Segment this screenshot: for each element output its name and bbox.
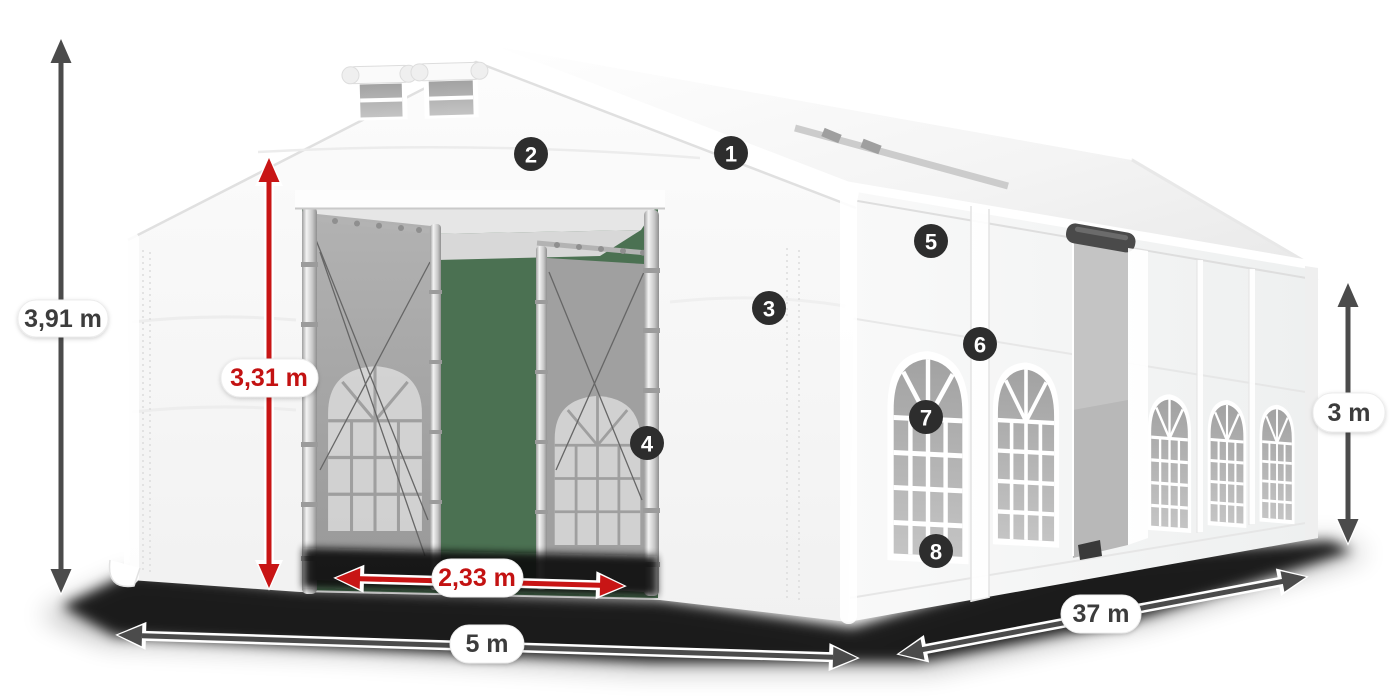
side-window xyxy=(993,361,1059,548)
tent xyxy=(110,38,1319,624)
entrance-opening xyxy=(301,205,660,598)
callout-badge-7: 7 xyxy=(909,400,943,434)
badge-number: 7 xyxy=(920,406,932,431)
callout-badge-3: 3 xyxy=(752,291,786,325)
length-value: 37 m xyxy=(1073,600,1130,628)
callout-badge-4: 4 xyxy=(630,426,664,460)
label-side-height: 3 m xyxy=(1313,393,1385,432)
callout-badge-2: 2 xyxy=(514,137,548,171)
total-height-value: 3,91 m xyxy=(24,305,102,333)
side-window xyxy=(1208,399,1247,528)
side-window xyxy=(888,349,969,564)
front-width-value: 5 m xyxy=(465,630,508,658)
door-window-print xyxy=(555,396,641,545)
side-height-value: 3 m xyxy=(1327,399,1370,427)
callout-badge-1: 1 xyxy=(714,136,748,170)
entrance-width-value: 2,33 m xyxy=(438,564,516,592)
corner-roll xyxy=(840,192,857,624)
wall-strap xyxy=(1128,248,1148,545)
label-entrance-height: 3,31 m xyxy=(221,359,318,397)
label-total-height: 3,91 m xyxy=(18,300,108,337)
wall-strap xyxy=(971,206,989,602)
side-window xyxy=(1260,403,1295,524)
badge-number: 8 xyxy=(930,540,942,565)
badge-number: 5 xyxy=(925,230,937,255)
entrance-height-value: 3,31 m xyxy=(230,364,308,392)
callout-badge-5: 5 xyxy=(914,224,948,258)
badge-number: 6 xyxy=(974,333,986,358)
badge-number: 1 xyxy=(725,142,737,167)
badge-number: 2 xyxy=(525,143,537,168)
badge-number: 3 xyxy=(763,297,775,322)
callout-badge-6: 6 xyxy=(963,327,997,361)
corner-roll xyxy=(124,232,139,584)
label-length: 37 m xyxy=(1061,595,1141,633)
entrance-header-beam xyxy=(295,190,665,209)
label-front-width: 5 m xyxy=(450,625,524,663)
label-entrance-width: 2,33 m xyxy=(432,559,523,597)
badge-number: 4 xyxy=(641,432,654,457)
tent-dimension-diagram: 3,91 m 3,31 m 2,33 m 5 m 37 m 3 m 1 2 3 … xyxy=(0,0,1400,700)
side-passage-opening xyxy=(1065,222,1137,560)
callout-badge-8: 8 xyxy=(919,534,953,568)
diagram-canvas: 3,91 m 3,31 m 2,33 m 5 m 37 m 3 m 1 2 3 … xyxy=(0,0,1400,700)
side-window xyxy=(1148,393,1191,533)
